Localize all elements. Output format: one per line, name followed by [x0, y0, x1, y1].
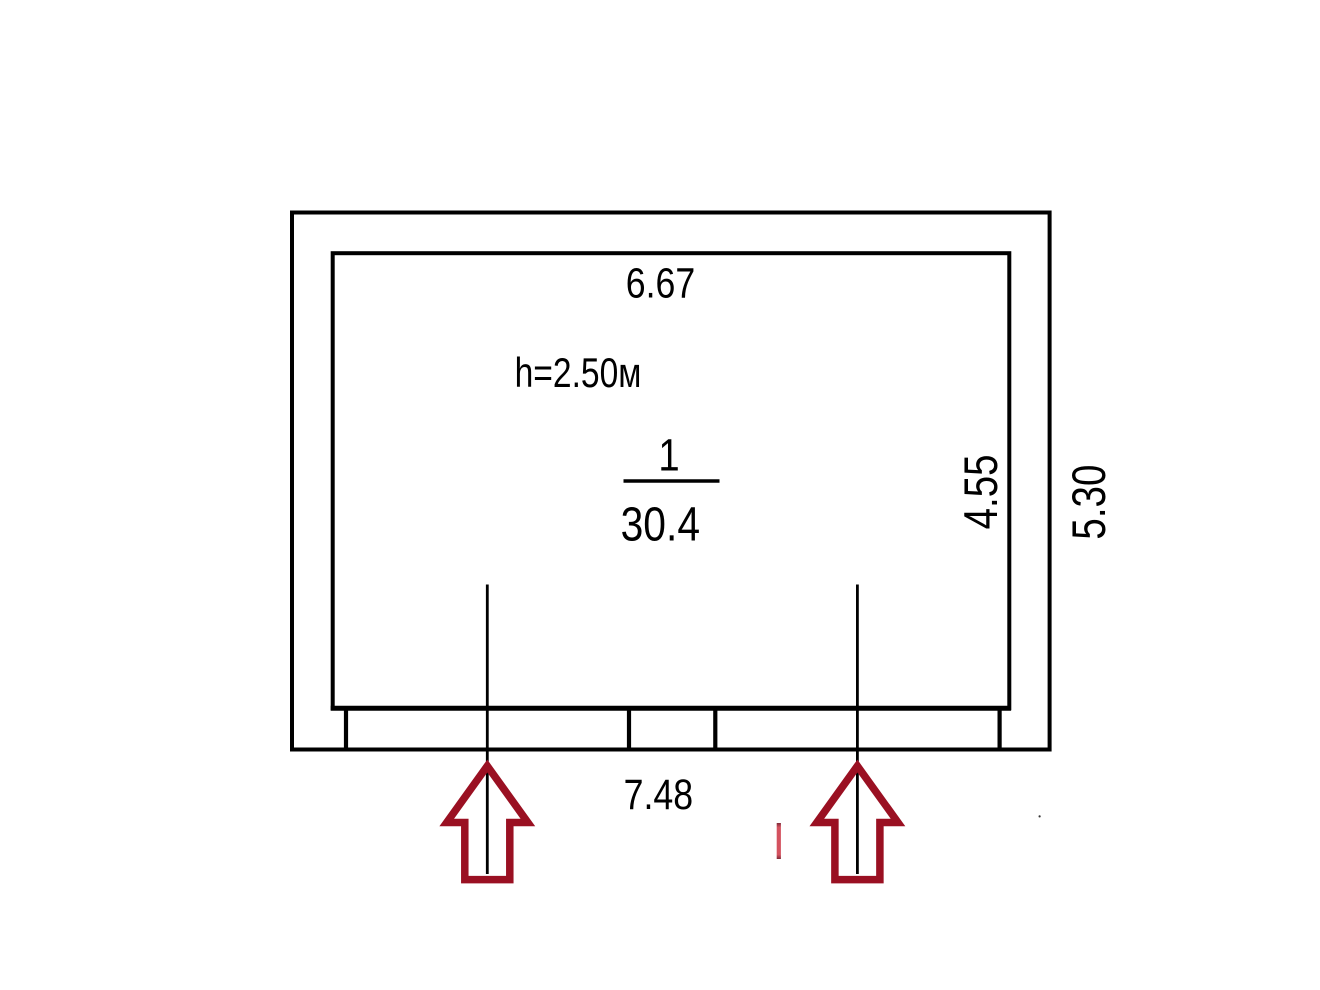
svg-text:5.30: 5.30 [1063, 465, 1115, 540]
svg-text:7.48: 7.48 [624, 771, 693, 819]
svg-text:6.67: 6.67 [626, 259, 695, 307]
svg-text:30.4: 30.4 [621, 498, 700, 551]
svg-text:4.55: 4.55 [955, 454, 1007, 529]
svg-text:1: 1 [658, 429, 679, 480]
svg-text:h=2.50м: h=2.50м [515, 351, 642, 397]
